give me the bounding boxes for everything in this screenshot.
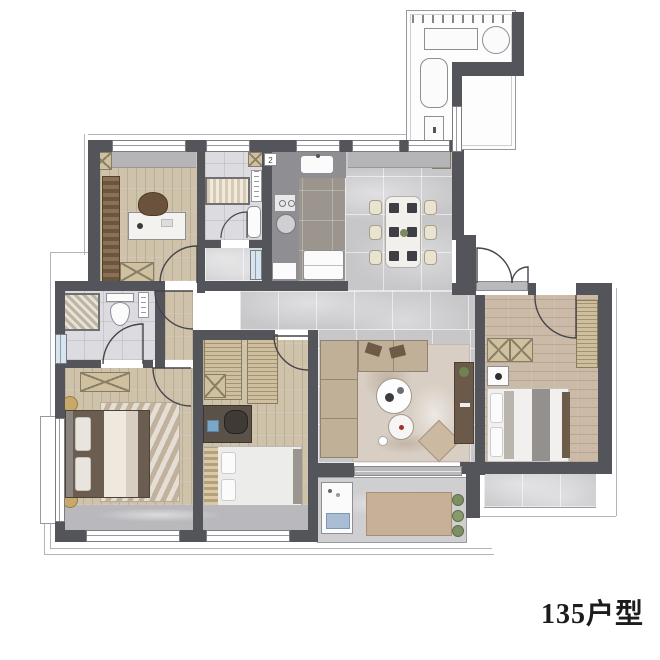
master-bed: [487, 388, 569, 462]
bed-footboard: [293, 449, 302, 504]
outline-left-upper: [84, 134, 85, 255]
tv-console: [454, 362, 474, 444]
desk-laptop: [207, 420, 219, 432]
wall-balcony-top-left: [308, 463, 354, 477]
desk: [128, 212, 186, 240]
wall-kitchen-bottom: [197, 281, 348, 291]
wall-balcony-right: [466, 474, 480, 518]
toilet-tank: [106, 293, 134, 302]
control-dot: [433, 127, 436, 133]
placemat: [389, 227, 399, 237]
plant-icon: [452, 525, 464, 537]
towel-rail-2: [138, 292, 149, 318]
window-bathroom1: [206, 140, 250, 152]
lamp-icon: [495, 373, 502, 380]
bed-sheet-fold: [504, 391, 514, 459]
bed-headboard-rattan: [204, 447, 218, 505]
plan-title: 135户型: [541, 592, 644, 632]
washing-machine: [424, 28, 478, 50]
window-shaft: [250, 250, 262, 280]
pillow: [75, 457, 91, 491]
bedroom1-bed: [65, 410, 150, 498]
bathtub-small: [247, 206, 261, 238]
kitchen-marker: 2: [264, 153, 277, 166]
plant-icon: [452, 510, 464, 522]
wall-master-left: [475, 295, 485, 475]
bed-bench: [562, 392, 570, 458]
study-cabinet: [120, 262, 154, 282]
outline-step: [50, 252, 88, 253]
floor-vase: [378, 436, 388, 446]
plant-icon: [459, 367, 469, 377]
study-curtain-sill: [110, 152, 196, 168]
bed-throw: [532, 389, 550, 461]
bedroom2-bed: [203, 446, 302, 506]
dining-chair: [369, 200, 382, 215]
shower-area-1: [205, 177, 250, 205]
dining-chair: [424, 200, 437, 215]
wall-bedroom1-top-b: [143, 360, 153, 368]
wall-laundry-bottom: [452, 62, 524, 76]
side-table-item: [399, 425, 404, 430]
nightstand-1: [487, 366, 509, 386]
pillow: [490, 393, 503, 423]
placemat: [407, 227, 417, 237]
placemat: [389, 251, 399, 261]
wall-dining-right: [452, 150, 464, 240]
wok-burner: [276, 214, 296, 234]
bedroom1-bay-window: [40, 416, 56, 524]
wall-laundry-stub: [452, 76, 462, 108]
bed-throw: [126, 411, 138, 497]
window-study: [112, 140, 186, 152]
entry-threshold: [476, 281, 528, 291]
plant-icon: [452, 494, 464, 506]
coffee-table: [376, 378, 412, 414]
wall-entry-left: [452, 283, 476, 295]
tv-remote: [460, 403, 470, 407]
dining-chair: [424, 225, 437, 240]
faucet-icon: [316, 154, 320, 158]
wall-bath1-divider-a: [205, 240, 221, 248]
master-closet-1: [487, 338, 510, 362]
master-wardrobe: [576, 300, 598, 368]
wall-study-right: [197, 140, 205, 293]
outline-bottom-1: [50, 548, 492, 549]
wall-left-upper: [88, 140, 100, 291]
dining-table: [385, 196, 421, 268]
bedroom2-cabinet: [204, 374, 226, 398]
bed-blanket: [104, 411, 126, 497]
pillow: [221, 479, 236, 501]
master-closet-2: [510, 338, 533, 362]
placemat: [407, 251, 417, 261]
wall-right: [598, 292, 612, 474]
wall-living-left: [308, 330, 318, 542]
bedroom1-cabinet: [80, 372, 130, 392]
window-dining-1: [352, 140, 400, 152]
pillow: [75, 417, 91, 451]
shower-area-2: [63, 293, 100, 331]
laundry-sink: [482, 26, 510, 54]
wall-bath1-divider-b: [249, 240, 262, 248]
table-bowl-1: [385, 393, 394, 402]
window-bedroom2-south: [206, 530, 290, 542]
water-heater: [420, 58, 448, 108]
table-plant-icon: [400, 229, 408, 237]
window-kitchen: [296, 140, 340, 152]
bed-headboard: [66, 411, 73, 497]
bedroom2-wardrobe-2: [247, 334, 278, 404]
wall-bedroom-divider: [193, 330, 203, 542]
pillow: [221, 452, 236, 474]
pillow: [490, 427, 503, 457]
utility-control-box: [424, 116, 444, 142]
bedroom2-chair: [224, 410, 248, 434]
desk-paper: [161, 219, 173, 227]
towel-blue: [326, 513, 350, 529]
wall-entry-stub: [528, 283, 536, 295]
drain-dot: [336, 493, 340, 497]
sofa-chaise: [320, 340, 358, 458]
door-arc-entry-main: [477, 248, 512, 283]
burner-icon-1: [279, 200, 286, 207]
hallway-floor: [240, 291, 475, 330]
table-bowl-2: [397, 387, 404, 394]
desk-chair: [138, 192, 168, 216]
placemat: [407, 203, 417, 213]
dining-chair: [369, 225, 382, 240]
column-box-2: [248, 152, 263, 167]
placemat: [389, 203, 399, 213]
window-sill-band: [60, 505, 308, 530]
burner-icon-2: [288, 200, 295, 207]
outline-right: [616, 288, 617, 516]
window-dining-2: [408, 140, 450, 152]
towel-rail-1: [251, 170, 262, 202]
balcony-mat: [366, 492, 452, 536]
stove: [274, 194, 296, 212]
faucet-dot: [328, 489, 332, 493]
fridge-door-line: [304, 265, 343, 266]
drying-rack-icon: [412, 15, 508, 23]
floor-plan: 2: [0, 0, 660, 660]
dining-curtain-sill: [348, 152, 450, 168]
outline-bottom-2: [44, 554, 494, 555]
side-table: [388, 414, 414, 440]
window-laundry: [452, 106, 462, 152]
balcony-washbasin: [321, 482, 353, 534]
dining-chair: [369, 250, 382, 265]
window-bathroom2: [55, 334, 67, 364]
fridge: [303, 250, 344, 280]
vestibule-floor: [165, 291, 193, 360]
sliding-door-track: [355, 471, 461, 472]
kitchen-sink: [300, 155, 334, 174]
master-balcony-floor: [484, 474, 596, 508]
wall-bath2-right: [155, 291, 165, 368]
dishwasher: [272, 262, 297, 280]
wall-bedroom2-top: [193, 330, 275, 340]
wall-laundry-right: [512, 12, 524, 68]
window-bedroom1-bay-inner: [55, 418, 65, 522]
wall-master-bottom: [460, 462, 600, 474]
dining-chair: [424, 250, 437, 265]
balcony-sliding-door: [354, 466, 462, 476]
desk-item: [137, 223, 143, 229]
bookshelf: [102, 176, 120, 282]
wall-study-bottom: [100, 281, 165, 291]
window-bedroom1-south: [86, 530, 180, 542]
